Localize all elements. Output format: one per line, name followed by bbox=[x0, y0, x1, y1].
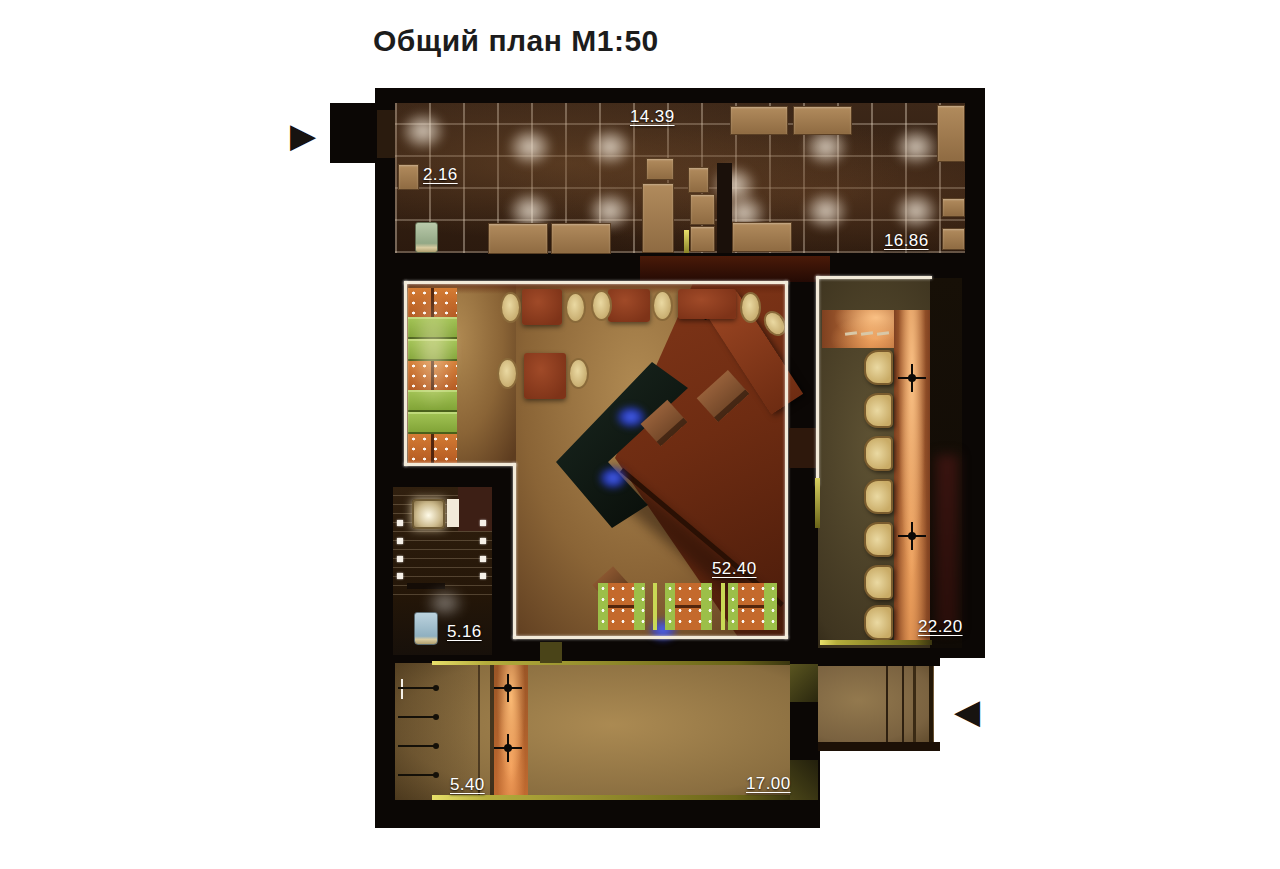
entrance-vestibule bbox=[330, 103, 380, 163]
hook-dot bbox=[433, 743, 439, 749]
wall-marker bbox=[480, 538, 486, 544]
stair-step-line bbox=[913, 666, 916, 742]
bar-trim bbox=[816, 276, 819, 486]
kitchen-counter bbox=[937, 105, 965, 162]
kitchen-counter bbox=[642, 183, 674, 253]
bar-stool bbox=[864, 436, 893, 471]
ceiling-light-icon bbox=[898, 522, 926, 550]
wall-marker bbox=[480, 520, 486, 526]
stair-step-line bbox=[929, 666, 933, 742]
hall-trim bbox=[404, 281, 788, 284]
ceiling-light-glow bbox=[894, 192, 938, 230]
ceiling-light-glow bbox=[508, 128, 552, 166]
dining-table bbox=[524, 353, 566, 399]
area-label-dining-hall: 52.40 bbox=[712, 560, 757, 577]
area-label-wardrobe: 5.40 bbox=[450, 776, 485, 793]
kitchen-counter bbox=[730, 106, 788, 135]
kitchen-counter bbox=[942, 198, 965, 217]
hook-dot bbox=[433, 772, 439, 778]
bar-lounge-counter-side bbox=[894, 310, 930, 640]
kitchen-counter bbox=[690, 194, 715, 225]
area-label-storage: 2.16 bbox=[423, 166, 458, 183]
hall-trim bbox=[513, 463, 516, 639]
bar-stool bbox=[864, 479, 893, 514]
kitchen-room bbox=[395, 103, 965, 253]
cross-dot bbox=[504, 684, 512, 692]
bar-stool bbox=[864, 522, 893, 557]
booth-gap-glow bbox=[721, 583, 725, 630]
exit-arrow-icon: ◀ bbox=[954, 694, 980, 728]
hall-bar-doorway bbox=[789, 428, 818, 468]
booth-light-glow bbox=[410, 292, 456, 412]
hook-dot bbox=[433, 714, 439, 720]
area-label-kitchen-left: 14.39 bbox=[630, 108, 675, 125]
wardrobe-tick bbox=[401, 679, 403, 699]
coat-hook-icon bbox=[398, 716, 434, 718]
corridor-corner-glow bbox=[790, 664, 818, 702]
kitchen-counter bbox=[793, 106, 852, 135]
ceiling-light-glow bbox=[894, 128, 938, 166]
stair-step-line bbox=[902, 666, 904, 742]
bar-stool bbox=[864, 350, 893, 385]
chair bbox=[652, 290, 673, 321]
ceiling-light-glow bbox=[401, 112, 445, 150]
cross-dot bbox=[908, 374, 916, 382]
dining-table bbox=[678, 289, 736, 319]
corridor-trim-top bbox=[432, 661, 790, 665]
wall-marker bbox=[397, 520, 403, 526]
kitchen-fridge bbox=[415, 222, 438, 253]
ceiling-light-icon bbox=[898, 364, 926, 392]
bar-trim-bottom bbox=[820, 640, 932, 645]
stair-bottom-edge bbox=[818, 742, 940, 751]
kitchen-hall-opening bbox=[640, 256, 830, 282]
bar-stool bbox=[864, 605, 893, 640]
booth-table bbox=[408, 434, 457, 463]
hook-dot bbox=[433, 685, 439, 691]
cross-dot bbox=[908, 532, 916, 540]
washroom-wall bbox=[458, 487, 492, 531]
washroom-door bbox=[447, 499, 459, 527]
stair-top-wall bbox=[818, 654, 940, 666]
floor-plan-page: Общий план М1:50 ▶ ◀ bbox=[0, 0, 1280, 869]
stair-step-line bbox=[886, 666, 888, 742]
ceiling-light-glow bbox=[804, 192, 848, 230]
ceiling-light-glow bbox=[588, 128, 632, 166]
wall-marker bbox=[397, 573, 403, 579]
hall-trim bbox=[404, 463, 516, 466]
corridor-door-glow bbox=[540, 642, 562, 663]
booth-group bbox=[728, 583, 777, 630]
ceiling-light-icon bbox=[494, 734, 522, 762]
kitchen-divider-wall bbox=[717, 163, 732, 253]
wall-marker bbox=[397, 538, 403, 544]
bar-trim-glow bbox=[815, 478, 820, 528]
corridor-corner-glow bbox=[790, 760, 818, 800]
kitchen-counter bbox=[688, 167, 709, 193]
kitchen-counter bbox=[551, 223, 611, 254]
toilet bbox=[414, 612, 438, 645]
booth-gap-glow bbox=[653, 583, 657, 630]
chair bbox=[497, 358, 518, 389]
kitchen-counter bbox=[690, 226, 715, 252]
kitchen-counter bbox=[488, 223, 548, 254]
coat-hook-icon bbox=[398, 687, 434, 689]
wall-marker bbox=[480, 556, 486, 562]
kitchen-counter bbox=[646, 158, 674, 180]
wall-marker bbox=[480, 573, 486, 579]
bar-blue-light bbox=[598, 466, 628, 490]
coat-hook-icon bbox=[398, 745, 434, 747]
page-title: Общий план М1:50 bbox=[373, 24, 659, 58]
chair bbox=[565, 292, 586, 323]
area-label-kitchen-right: 16.86 bbox=[884, 232, 929, 249]
sink bbox=[412, 499, 445, 529]
coat-hook-icon bbox=[398, 774, 434, 776]
area-label-corridor: 17.00 bbox=[746, 775, 791, 792]
bar-stool bbox=[864, 565, 893, 600]
dining-table bbox=[608, 289, 650, 322]
stair-landing bbox=[818, 666, 934, 742]
entrance-arrow-icon: ▶ bbox=[290, 118, 316, 152]
area-label-wc: 5.16 bbox=[447, 623, 482, 640]
wall-marker bbox=[397, 556, 403, 562]
bar-stool bbox=[864, 393, 893, 428]
dining-table bbox=[522, 289, 562, 325]
bar-trim bbox=[816, 276, 932, 279]
kitchen-counter bbox=[398, 164, 419, 190]
booth-bench bbox=[408, 412, 457, 434]
booth-group bbox=[598, 583, 645, 630]
ceiling-light-icon bbox=[494, 674, 522, 702]
hall-trim bbox=[513, 636, 788, 639]
kitchen-counter bbox=[942, 228, 965, 250]
chair bbox=[740, 292, 761, 323]
entrance-door-opening bbox=[377, 110, 397, 158]
chair bbox=[568, 358, 589, 389]
corridor-trim-bottom bbox=[432, 795, 790, 800]
chair bbox=[591, 290, 612, 321]
booth-group bbox=[665, 583, 712, 630]
hall-trim bbox=[785, 281, 788, 639]
bar-lounge-shelf-glow bbox=[936, 455, 958, 630]
area-label-bar-lounge: 22.20 bbox=[918, 618, 963, 635]
hall-trim bbox=[404, 281, 407, 466]
cross-dot bbox=[504, 744, 512, 752]
kitchen-counter bbox=[732, 222, 792, 252]
chair bbox=[500, 292, 521, 323]
kitchen-door-light bbox=[684, 230, 689, 253]
